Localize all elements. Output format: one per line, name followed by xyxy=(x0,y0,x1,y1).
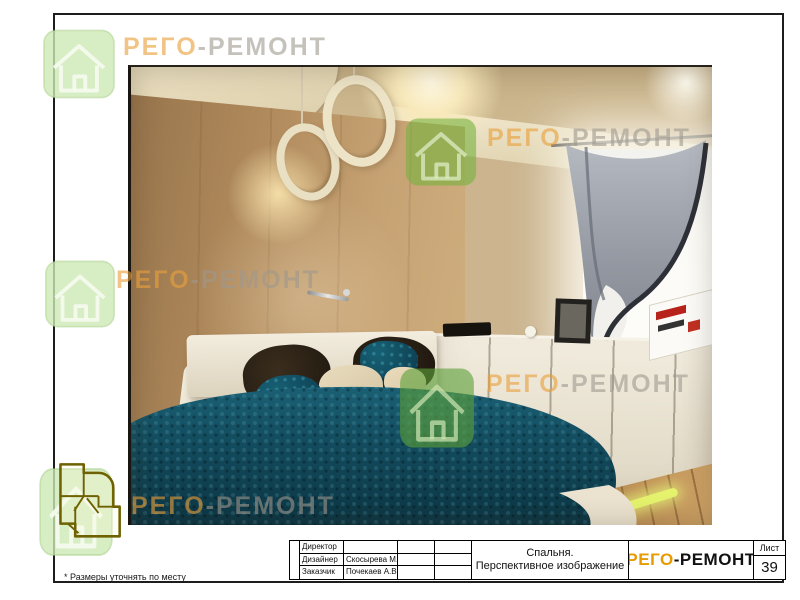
sheet-label: Лист xyxy=(754,541,785,556)
empty-cell xyxy=(435,554,472,567)
round-decor-object xyxy=(525,326,536,337)
empty-cell xyxy=(398,541,435,554)
role-label-client: Заказчик xyxy=(300,566,344,579)
role-label-designer: Дизайнер xyxy=(300,554,344,567)
name-director xyxy=(344,541,398,554)
sheet-cell: Лист 39 xyxy=(754,541,785,579)
brand-watermark-text: РЕГО-РЕМОНТ xyxy=(486,370,690,399)
house-logo-icon xyxy=(402,112,480,192)
magazine-cover-stripe xyxy=(688,319,700,332)
magazine-cover-stripe xyxy=(658,319,684,331)
empty-cell xyxy=(398,566,435,579)
magazine-cover-stripe xyxy=(656,305,686,320)
brand-logo: РЕГО-РЕМОНТ xyxy=(629,541,754,579)
name-client: Почекаев А.В. xyxy=(344,566,398,579)
title-block-spacer xyxy=(290,541,300,579)
empty-cell xyxy=(398,554,435,567)
pendant-cord xyxy=(301,67,303,127)
drawing-title: Спальня. Перспективное изображение xyxy=(472,541,629,579)
empty-cell xyxy=(435,541,472,554)
brand-watermark-text: РЕГО-РЕМОНТ xyxy=(487,124,691,153)
house-logo-icon xyxy=(396,362,478,454)
footnote: * Размеры уточнять по месту xyxy=(64,572,186,582)
house-logo-icon xyxy=(42,254,118,334)
media-player-device xyxy=(443,322,491,337)
title-block: Директор Дизайнер Заказчик Скосырева М.Г… xyxy=(289,540,786,580)
empty-cell xyxy=(435,566,472,579)
role-label-director: Директор xyxy=(300,541,344,554)
sheet-number: 39 xyxy=(754,556,785,579)
floor-plan-thumbnail xyxy=(52,458,126,548)
drawing-title-line2: Перспективное изображение xyxy=(476,560,625,573)
name-designer: Скосырева М.Г. xyxy=(344,554,398,567)
brand-watermark-text: РЕГО-РЕМОНТ xyxy=(131,492,335,521)
wall-reading-lamp-tip xyxy=(343,289,350,296)
brand-watermark-text: РЕГО-РЕМОНТ xyxy=(116,266,320,295)
brand-watermark-text: РЕГО-РЕМОНТ xyxy=(123,33,327,62)
ceiling-light-glow-small xyxy=(641,65,712,127)
drawing-title-line1: Спальня. xyxy=(526,547,573,560)
framed-object xyxy=(554,298,592,343)
house-logo-icon xyxy=(40,25,118,103)
